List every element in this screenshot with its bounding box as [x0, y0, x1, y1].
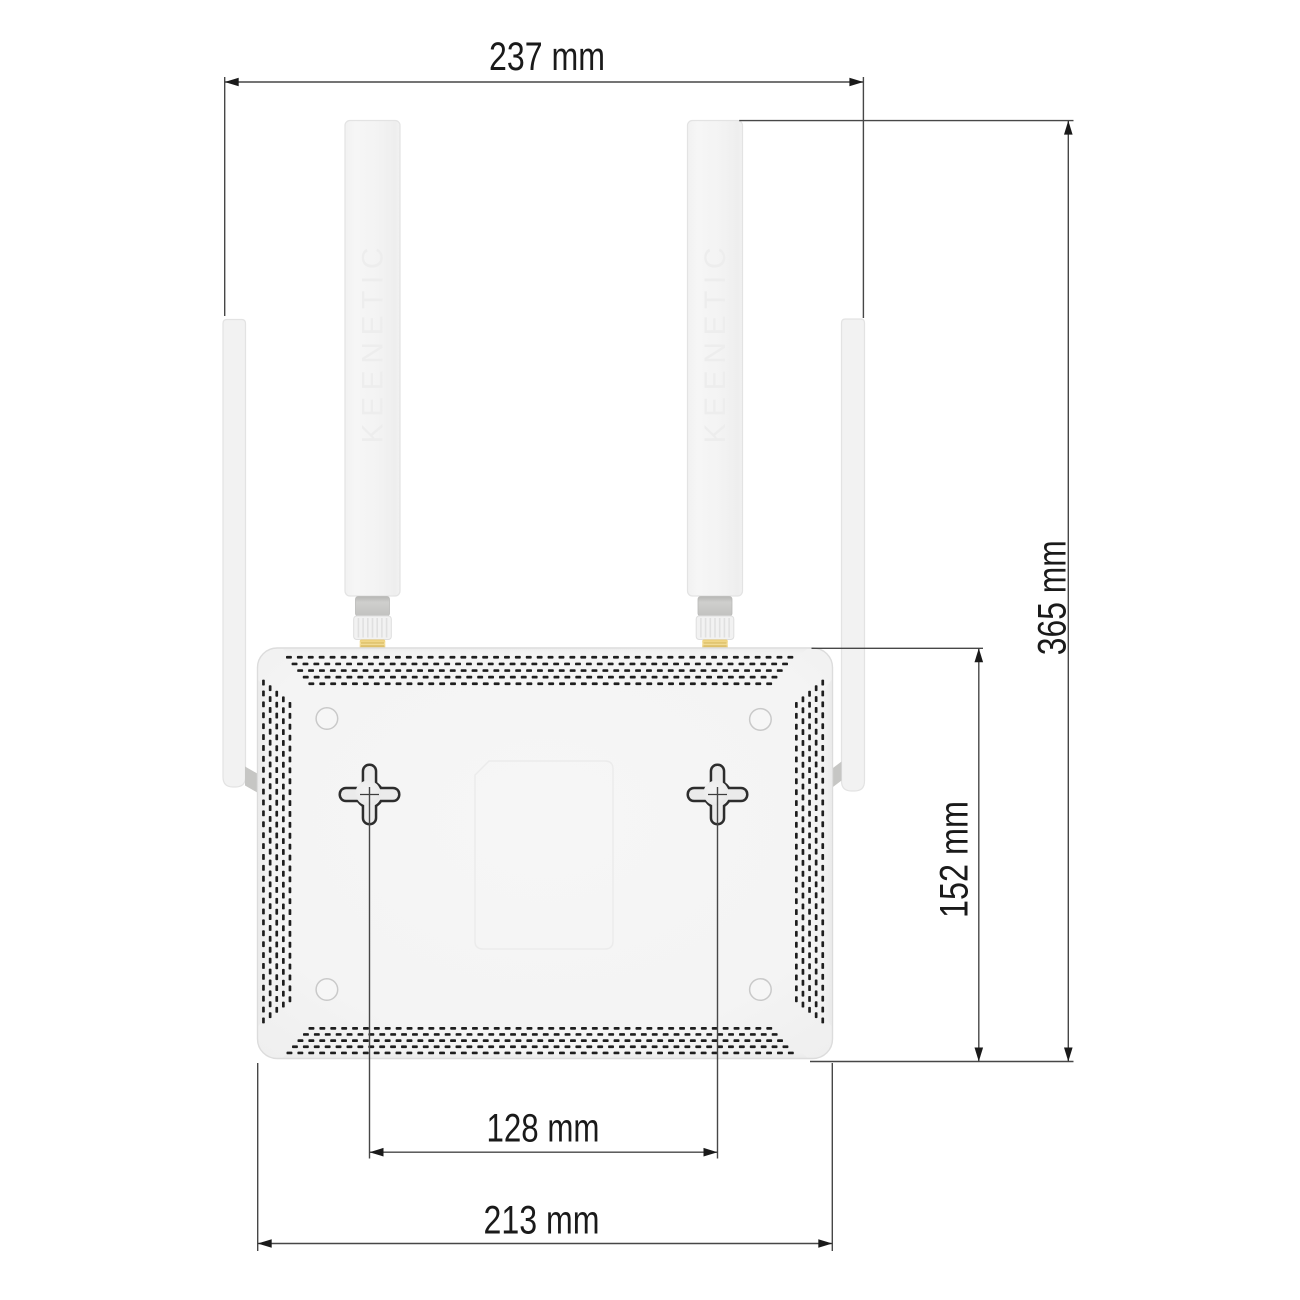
- svg-text:213 mm: 213 mm: [484, 1199, 600, 1243]
- svg-text:KEENETIC: KEENETIC: [699, 244, 732, 444]
- svg-text:KEENETIC: KEENETIC: [357, 244, 390, 444]
- svg-text:237 mm: 237 mm: [489, 35, 605, 79]
- svg-text:152 mm: 152 mm: [932, 801, 976, 918]
- svg-text:365 mm: 365 mm: [1030, 540, 1074, 655]
- svg-text:128 mm: 128 mm: [487, 1107, 600, 1151]
